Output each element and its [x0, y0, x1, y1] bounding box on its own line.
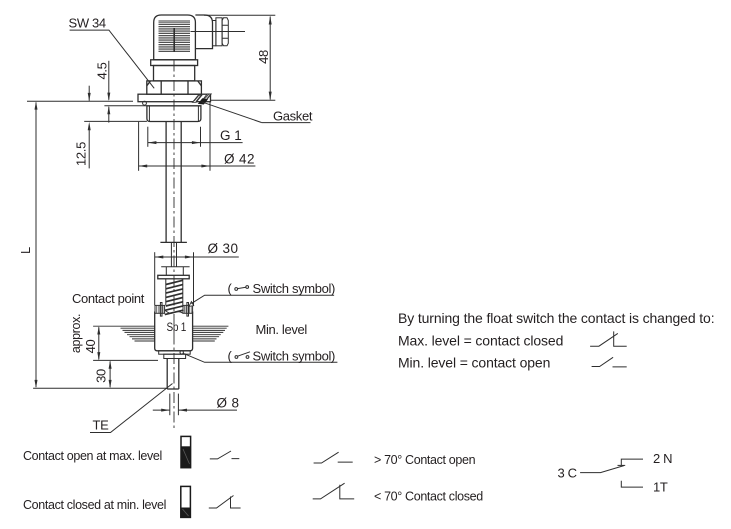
svg-text:Contact point: Contact point: [72, 291, 145, 306]
svg-text:12.5: 12.5: [74, 142, 89, 166]
svg-text:30: 30: [93, 369, 108, 383]
svg-text:Contact open at max. level: Contact open at max. level: [23, 449, 162, 463]
svg-text:Min. level = contact open: Min. level = contact open: [398, 355, 550, 371]
svg-text:4.5: 4.5: [95, 62, 110, 79]
svg-text:Ø 8: Ø 8: [217, 395, 240, 410]
svg-text:L: L: [18, 247, 33, 254]
svg-text:SW 34: SW 34: [69, 16, 106, 31]
svg-text:Switch symbol): Switch symbol): [253, 281, 336, 296]
svg-text:Ø 42: Ø 42: [224, 152, 255, 167]
svg-text:Switch symbol): Switch symbol): [253, 348, 336, 363]
svg-text:TE: TE: [93, 418, 110, 433]
svg-text:Sp 1: Sp 1: [167, 320, 187, 334]
svg-text:By turning the float switch th: By turning the float switch the contact …: [398, 310, 714, 326]
svg-text:Ø 30: Ø 30: [208, 241, 239, 256]
svg-text:approx.: approx.: [69, 314, 83, 353]
svg-text:Contact closed at min. level: Contact closed at min. level: [23, 498, 166, 512]
svg-text:3 C: 3 C: [558, 466, 577, 481]
svg-text:48: 48: [256, 50, 271, 64]
svg-text:> 70° Contact open: > 70° Contact open: [374, 453, 476, 467]
svg-text:2 N: 2 N: [653, 451, 672, 466]
svg-text:40: 40: [83, 340, 98, 354]
svg-text:Max. level = contact closed: Max. level = contact closed: [398, 333, 563, 349]
svg-text:< 70° Contact closed: < 70° Contact closed: [374, 490, 483, 504]
svg-text:Gasket: Gasket: [273, 108, 313, 123]
svg-text:1T: 1T: [653, 480, 668, 495]
svg-text:G 1: G 1: [220, 128, 242, 143]
svg-text:Min. level: Min. level: [256, 322, 308, 337]
